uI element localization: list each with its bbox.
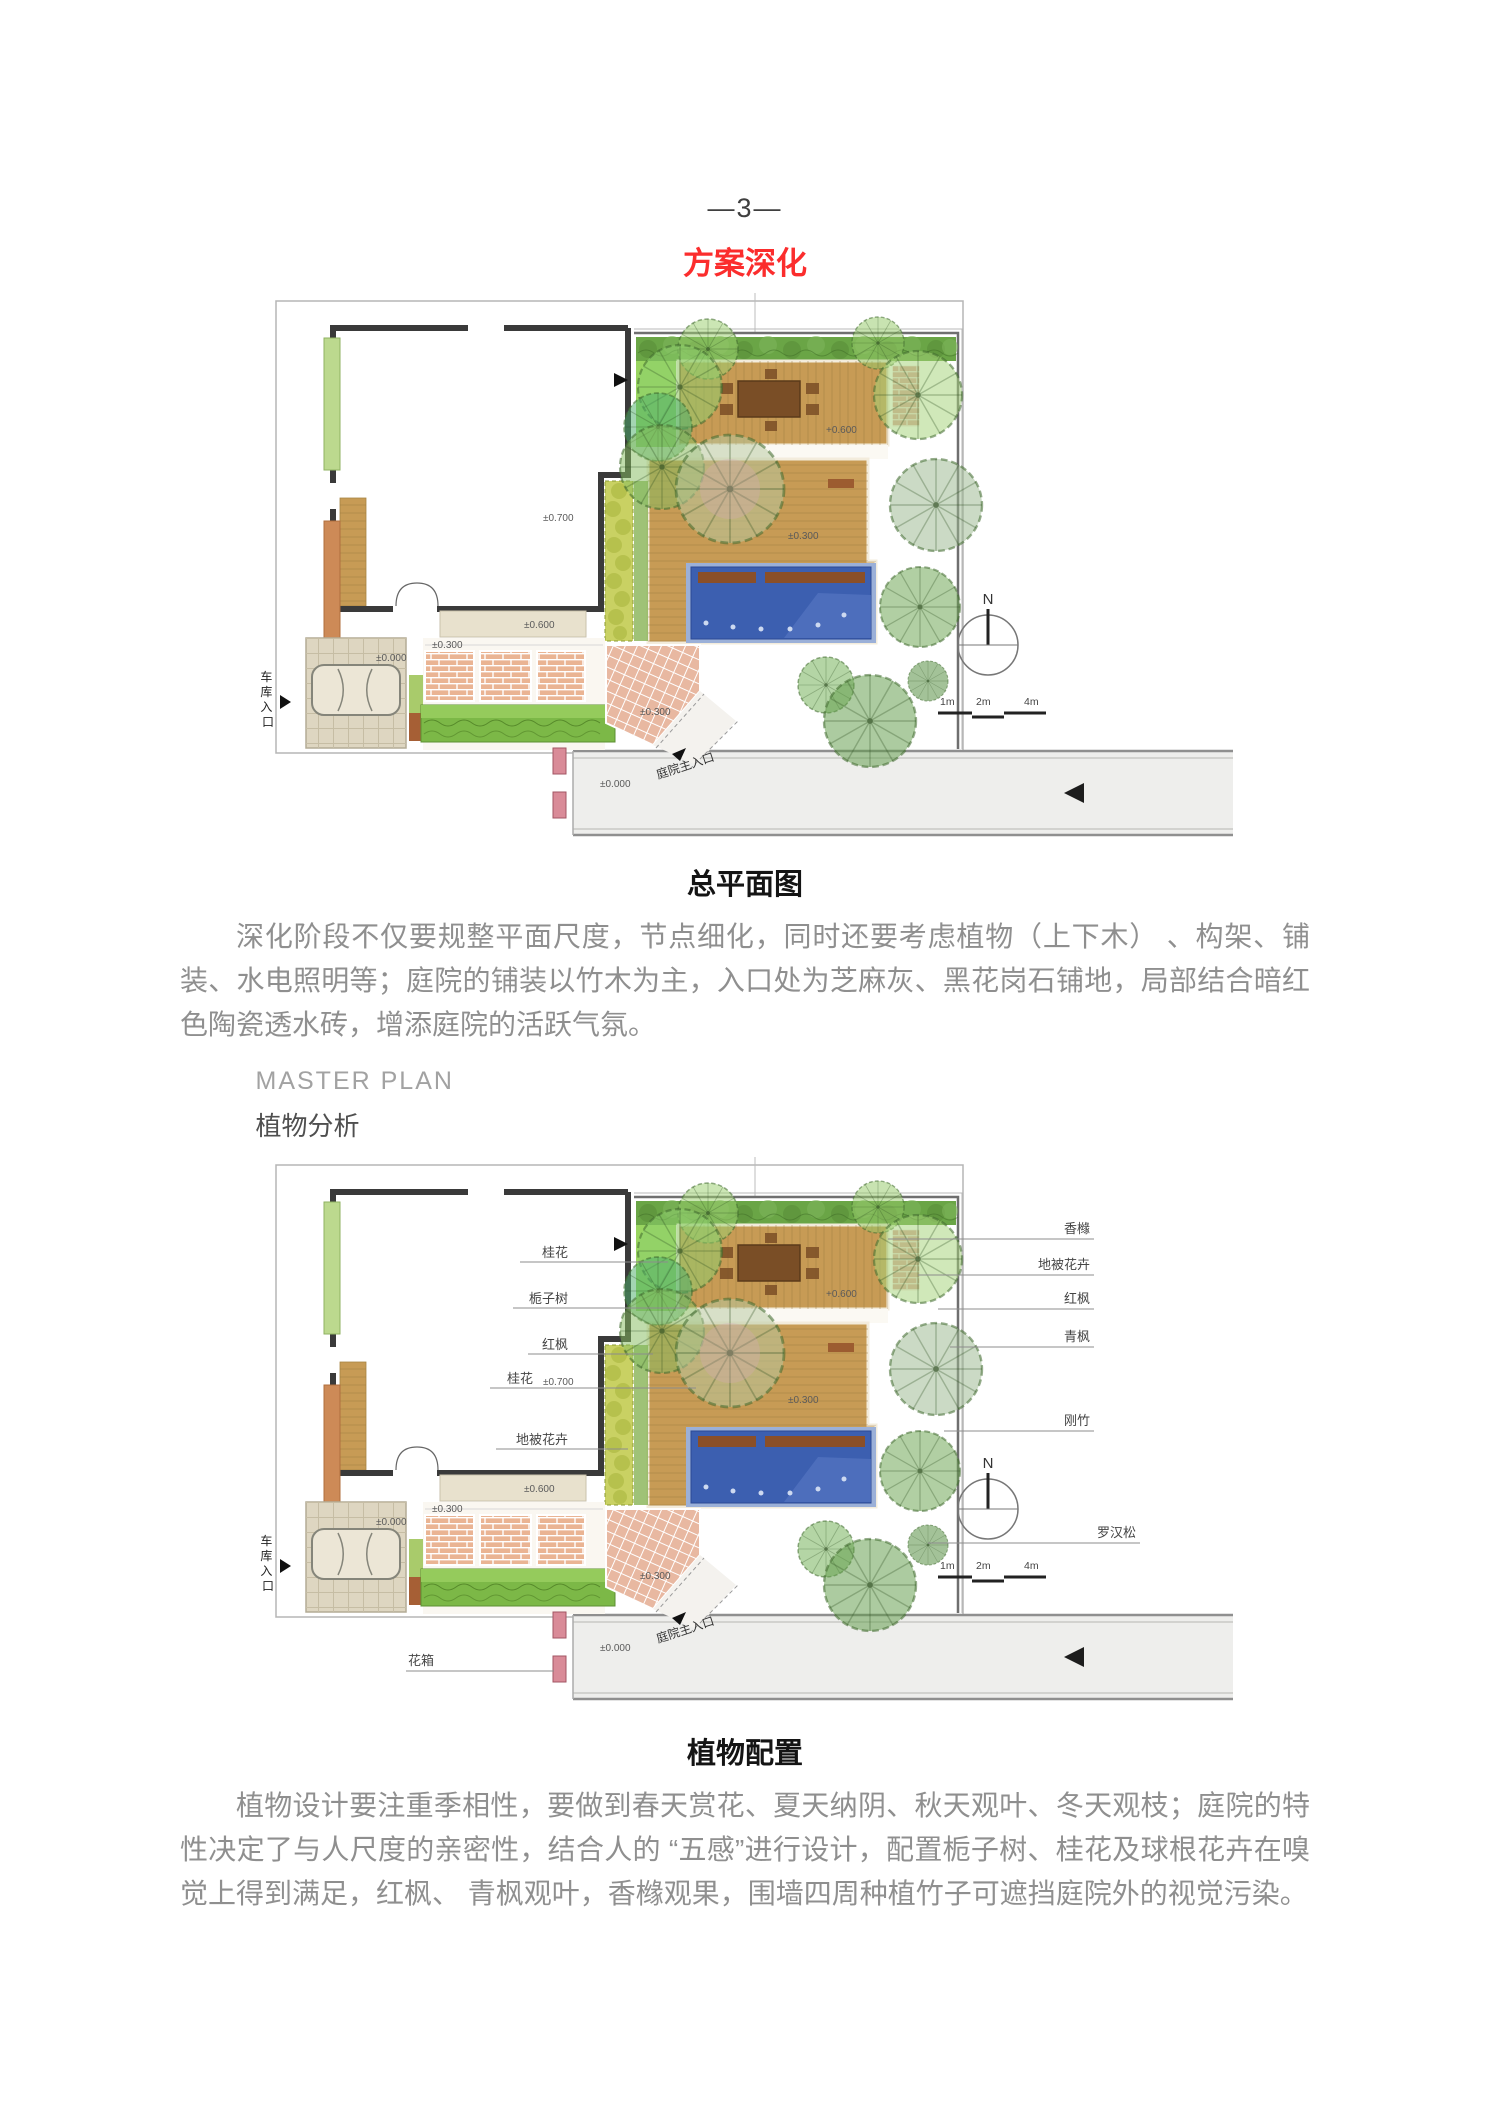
section-title: 方案深化 xyxy=(0,238,1490,283)
master-plan-figure xyxy=(228,293,1263,853)
plant-analysis-drawing: 桂花 栀子树 红枫 桂花 地被花卉 香橼 地被花卉 红枫 青枫 刚竹 xyxy=(228,1157,1263,1717)
plant-label: 花箱 xyxy=(408,1653,434,1668)
plant-label: 桂花 xyxy=(506,1371,532,1386)
plant-label: 青枫 xyxy=(1063,1329,1089,1344)
master-plan-drawing xyxy=(228,293,1263,853)
plant-label: 桂花 xyxy=(541,1245,567,1260)
plant-label: 红枫 xyxy=(541,1337,567,1352)
plant-label: 地被花卉 xyxy=(515,1432,567,1447)
plant-analysis-figure: MASTER PLAN 植物分析 桂花 栀子树 红枫 桂花 地被花卉 香橼 地被… xyxy=(228,1067,1263,1722)
paragraph-2: 植物设计要注重季相性，要做到春天赏花、夏天纳阴、秋天观叶、冬天观枝；庭院的特性决… xyxy=(180,1784,1310,1916)
figure2-title-en: MASTER PLAN xyxy=(256,1067,1263,1096)
figure2-title-cn: 植物分析 xyxy=(256,1106,1263,1143)
figure2-caption: 植物配置 xyxy=(0,1730,1490,1772)
page-number: —3— xyxy=(0,0,1490,224)
plant-label: 刚竹 xyxy=(1063,1413,1089,1428)
plant-label: 栀子树 xyxy=(528,1291,567,1306)
paragraph-1: 深化阶段不仅要规整平面尺度，节点细化，同时还要考虑植物（上下木） 、构架、铺装、… xyxy=(180,915,1310,1047)
plant-label: 罗汉松 xyxy=(1096,1525,1135,1540)
plant-label: 香橼 xyxy=(1063,1221,1089,1236)
plant-label: 红枫 xyxy=(1063,1291,1089,1306)
article-page: —3— 方案深化 总平面图 深化阶段不仅要规整平面尺度，节点细化，同时还要考虑植… xyxy=(0,0,1490,2105)
figure1-caption: 总平面图 xyxy=(0,861,1490,903)
plant-label: 地被花卉 xyxy=(1037,1257,1089,1272)
